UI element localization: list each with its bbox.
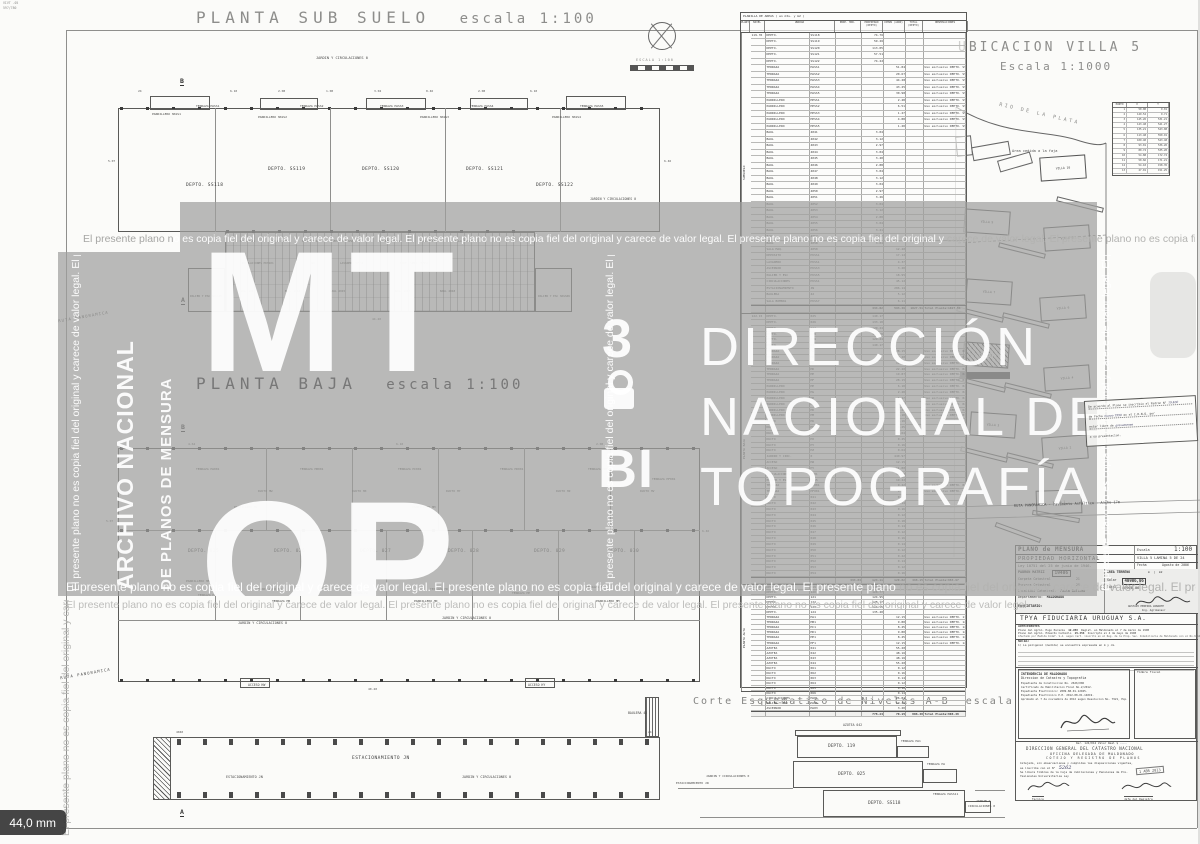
table-cell: [906, 661, 924, 665]
table-cell: [836, 52, 862, 57]
table-cell: [906, 104, 924, 109]
table-cell: [751, 712, 766, 716]
coord-cell: 543.08: [1148, 128, 1169, 132]
table-cell: [924, 666, 966, 670]
coord-cell: 536.26: [1148, 144, 1169, 148]
coord-cell: 93.01: [1127, 144, 1148, 148]
propietario-name: TPYA FIDUCIARIA URUGUAY S.A.: [1020, 615, 1147, 622]
table-cell: 43.25: [884, 85, 906, 90]
coord-cell: 6: [1113, 134, 1127, 138]
parking-label: ESTACIONAMIENTO JN: [226, 776, 263, 779]
table-cell: BAUL: [766, 169, 810, 174]
coord-cell: 171.21: [1148, 159, 1169, 163]
terrace-label: PARRILLERO HASS2: [258, 116, 287, 119]
table-cell: 2.88: [862, 163, 884, 168]
corte-deptoSS118-label: DEPTO. SS118: [868, 802, 901, 807]
table-cell: [906, 182, 924, 187]
table-cell: [906, 98, 924, 103]
coord-cell: 543.48: [1148, 139, 1169, 143]
table-cell: [906, 656, 924, 660]
table-cell: [751, 150, 766, 155]
table-cell: [924, 656, 966, 660]
table-cell: Uso exclusivo DEPTO. SS119: [924, 72, 966, 77]
mtop-logo-op: OP: [200, 476, 461, 596]
table-cell: [906, 78, 924, 83]
table-cell: BAUL: [766, 156, 810, 161]
jefe-registro-label: Jefe del Registro: [1124, 796, 1153, 801]
table-cell: [836, 189, 862, 194]
table-cell: [751, 124, 766, 129]
table-cell: [836, 59, 862, 64]
intendencia-signature: [1057, 710, 1117, 734]
table-cell: 0.12: [884, 681, 906, 685]
table-cell: [924, 671, 966, 675]
table-cell: [766, 712, 810, 716]
corte-depto119-label: DEPTO. 119: [828, 745, 855, 750]
table-cell: [906, 666, 924, 670]
area-header-cell: PROP. HOR.: [835, 21, 861, 32]
corte-terr3-label: TERRAZA HASS11: [933, 793, 958, 796]
table-cell: Uso exclusivo DEPTO. 122: [924, 630, 966, 634]
table-cell: 1.27: [884, 111, 906, 116]
table-cell: [751, 635, 766, 639]
table-cell: PARRILLERO: [766, 104, 810, 109]
table-cell: 74.22: [862, 59, 884, 64]
table-cell: [836, 635, 862, 639]
table-cell: TERRAZA: [766, 65, 810, 70]
watermark-disclaimer-vertical-left-lower: El presente plano no es copia fiel del o…: [60, 600, 72, 836]
terrace-label: PARRILLERO HASS4: [552, 116, 581, 119]
table-cell: [836, 696, 862, 700]
coord-cell: 54.10: [1127, 164, 1148, 168]
table-cell: [924, 686, 966, 690]
table-cell: [884, 33, 906, 38]
table-cell: BAUL: [766, 163, 810, 168]
table-cell: PARRILLERO: [766, 117, 810, 122]
coord-header: X: [1127, 103, 1148, 107]
table-cell: DEPTO.: [766, 52, 810, 57]
table-cell: [836, 176, 862, 181]
table-cell: [751, 661, 766, 665]
table-cell: [906, 625, 924, 629]
table-cell: [906, 686, 924, 690]
table-cell: [924, 189, 966, 194]
table-cell: [906, 163, 924, 168]
table-cell: 3.12: [862, 137, 884, 142]
access-label: ACCESO HY: [528, 684, 545, 687]
table-cell: [862, 630, 884, 634]
dimension-label: 3.04: [374, 90, 381, 93]
table-cell: HA03: [810, 706, 836, 710]
intendencia-box: INTENDENCIA DE MALDONADODireccion de Cat…: [1018, 669, 1130, 739]
table-cell: [862, 646, 884, 650]
table-cell: 778.24: [862, 712, 884, 716]
table-cell: [751, 59, 766, 64]
table-cell: 3.12: [862, 176, 884, 181]
coord-cell: 149.52: [1127, 113, 1148, 117]
table-cell: [862, 681, 884, 685]
table-cell: [884, 176, 906, 181]
table-cell: BAUL: [766, 182, 810, 187]
table-cell: [836, 156, 862, 161]
table-cell: [884, 46, 906, 51]
table-cell: [924, 150, 966, 155]
area-table-title: PLANILLA DE AREAS ( en mts. y m2 ): [741, 13, 966, 21]
table-cell: [906, 176, 924, 181]
section-marker-a: A: [180, 809, 184, 817]
table-cell: 806.48: [906, 712, 924, 716]
table-cell: Total Planta=806.48: [924, 712, 966, 716]
table-cell: 30.98: [884, 91, 906, 96]
table-cell: Uso exclusivo DEPTO. 121: [924, 625, 966, 629]
coord-cell: 1: [1113, 108, 1127, 112]
title-planta-sub-suelo: PLANTA SUB SUELO escala 1:100: [196, 8, 597, 27]
table-cell: HF1: [810, 641, 836, 645]
access-label: ACCESO HW: [248, 684, 265, 687]
table-cell: [884, 143, 906, 148]
table-cell: [751, 169, 766, 174]
table-cell: [751, 701, 766, 705]
table-cell: 4050: [810, 189, 836, 194]
parking-label: ESTACIONAMIENTO JN: [352, 757, 410, 762]
table-cell: [906, 46, 924, 51]
corte-depto025-label: DEPTO. 025: [838, 773, 865, 778]
table-cell: [836, 625, 862, 629]
terrace-label: TERRAZA HASS4: [470, 105, 493, 108]
villa-label: VILLA 10: [1056, 166, 1071, 171]
table-cell: [836, 676, 862, 680]
table-cell: [884, 169, 906, 174]
coord-cell: 172.74: [1148, 154, 1169, 158]
table-cell: [751, 111, 766, 116]
jardin-label: JARDIN Y CIRCULACIONES 0: [462, 776, 511, 779]
table-cell: 042: [810, 651, 836, 655]
table-cell: 48.16: [884, 656, 906, 660]
table-cell: SS119: [810, 39, 836, 44]
table-cell: PARRILLERO: [766, 98, 810, 103]
table-cell: [906, 651, 924, 655]
table-cell: [906, 91, 924, 96]
area-header-cell: COMUN (JARD): [883, 21, 905, 32]
table-cell: [751, 117, 766, 122]
table-cell: [924, 156, 966, 161]
table-cell: [751, 646, 766, 650]
corte-azotea-label: AZOTEA 042: [843, 724, 862, 727]
table-cell: [751, 98, 766, 103]
coord-cell: 9.01: [1148, 108, 1169, 112]
table-cell: 0.16: [884, 671, 906, 675]
table-cell: [751, 189, 766, 194]
table-cell: DUCTO: [766, 666, 810, 670]
table-cell: HPSS3: [810, 111, 836, 116]
table-cell: [751, 706, 766, 710]
table-cell: [906, 150, 924, 155]
table-cell: [836, 33, 862, 38]
table-cell: 3.04: [862, 169, 884, 174]
title-ubicacion-escala: Escala 1:1000: [1000, 60, 1112, 73]
table-cell: HA1: [810, 615, 836, 619]
coord-cell: 550.91: [1148, 134, 1169, 138]
jardin-label: JARDIN Y CIRCULACIONES 0: [442, 617, 491, 620]
mtop-logo-3: 3: [602, 308, 632, 370]
table-cell: 062: [810, 671, 836, 675]
table-cell: [751, 156, 766, 161]
table-cell: [836, 91, 862, 96]
dimension-label: 24: [138, 90, 142, 93]
table-cell: [862, 111, 884, 116]
table-cell: TERRAZA: [766, 78, 810, 83]
registro-body1: Cotejado, sin observaciones y cumplidas …: [1020, 762, 1133, 765]
tecnico-signature: [1026, 779, 1070, 794]
table-cell: SS121: [810, 52, 836, 57]
table-cell: [836, 651, 862, 655]
table-cell: 2.48: [884, 98, 906, 103]
table-cell: 74.76: [862, 33, 884, 38]
coord-cell: 151.25: [1148, 169, 1169, 173]
section-marker-b: B: [180, 78, 184, 86]
table-cell: HPSS5: [810, 124, 836, 129]
coord-cell: 145.26: [1127, 118, 1148, 122]
table-cell: HA05: [810, 701, 836, 705]
coord-cell: 143.48: [1127, 123, 1148, 127]
table-cell: [836, 98, 862, 103]
table-cell: BAUL: [766, 189, 810, 194]
timbre-box: Timbre fiscal: [1134, 669, 1196, 739]
corte-terrace: [923, 769, 957, 783]
table-cell: Uso exclusivo DEPTO. SS122: [924, 91, 966, 96]
table-cell: 59.26: [862, 39, 884, 44]
jefe-signature: [1120, 779, 1172, 794]
coord-cell: 27.01: [1127, 169, 1148, 173]
table-cell: HASS1: [810, 65, 836, 70]
coord-cell: 113.48: [1127, 134, 1148, 138]
coord-cell: 12: [1113, 164, 1127, 168]
fecha-label: Fecha: [1137, 564, 1147, 568]
table-cell: [751, 656, 766, 660]
table-cell: [836, 641, 862, 645]
table-cell: [862, 656, 884, 660]
table-cell: 4041: [810, 130, 836, 135]
jardin-label: JARDIN Y CIRCULACIONES 0: [316, 57, 368, 61]
table-cell: TERRAZA: [766, 615, 810, 619]
table-cell: [906, 169, 924, 174]
table-cell: [751, 681, 766, 685]
coord-cell: 109.40: [1127, 139, 1148, 143]
table-cell: 19.42: [884, 701, 906, 705]
table-cell: 064: [810, 681, 836, 685]
table-cell: 2.97: [862, 143, 884, 148]
catastro-line3: COTEJO Y REGISTRO DE PLANOS: [1046, 757, 1141, 761]
coord-cell: 80.74: [1127, 149, 1148, 153]
table-cell: [836, 150, 862, 155]
table-cell: [836, 85, 862, 90]
table-cell: [906, 646, 924, 650]
unit-label: DEPTO. SS120: [362, 168, 399, 173]
table-cell: Uso exclusivo DEPTO. SS121: [924, 85, 966, 90]
table-cell: HPSS2: [810, 104, 836, 109]
table-cell: [751, 143, 766, 148]
derechos-line: Der. 124/012 Valor Real $ ........: [1076, 742, 1127, 745]
table-cell: 0.12: [884, 666, 906, 670]
table-cell: BAUL: [766, 130, 810, 135]
coord-cell: 535.20: [1148, 149, 1169, 153]
corte-ground-right: [975, 790, 1005, 791]
terrace-label: TERRAZA HASS3: [380, 105, 403, 108]
table-cell: DEPTO.: [766, 46, 810, 51]
table-cell: [836, 163, 862, 168]
plan-baja-columns: [120, 679, 698, 682]
table-cell: [924, 130, 966, 135]
parking-outline: [153, 737, 660, 800]
table-cell: 0.14: [884, 691, 906, 695]
table-cell: DUCTO: [766, 691, 810, 695]
area-table-header: PLANTANIVELUNIDADPROP. HOR.PROPIEDAD (DE…: [741, 21, 966, 33]
table-cell: [884, 150, 906, 155]
table-cell: [836, 686, 862, 690]
table-cell: [751, 130, 766, 135]
scanned-plan-sheet: VIVT .05 597/780 PLANTA SUB SUELO escala…: [0, 0, 1200, 844]
table-cell: 2.97: [862, 189, 884, 194]
table-cell: [836, 65, 862, 70]
table-cell: [836, 661, 862, 665]
table-cell: [836, 111, 862, 116]
dimension-label: 5.07: [108, 160, 115, 163]
padlock-icon: [604, 370, 634, 409]
table-cell: 3.04: [862, 182, 884, 187]
table-cell: HASS5: [810, 91, 836, 96]
table-cell: [906, 630, 924, 634]
corte-left-label: ESTACIONAMIENTO JN: [676, 782, 709, 785]
table-cell: [884, 182, 906, 187]
table-cell: [862, 620, 884, 624]
table-cell: [751, 676, 766, 680]
table-cell: 061: [810, 666, 836, 670]
table-cell: [836, 78, 862, 83]
table-cell: [906, 143, 924, 148]
table-cell: Uso exclusivo DEPTO. 120: [924, 620, 966, 624]
unit-label: DEPTO. SS119: [268, 168, 305, 173]
table-cell: [810, 712, 836, 716]
table-cell: [836, 691, 862, 695]
table-cell: [836, 117, 862, 122]
table-cell: [751, 65, 766, 70]
bar-scale: [630, 65, 694, 71]
table-cell: [862, 117, 884, 122]
table-cell: [906, 137, 924, 142]
dimension-label: 6.10: [230, 90, 237, 93]
stamp-line: De acuerdo al Plano se inscribio el Padr…: [1088, 400, 1192, 410]
table-cell: AZOTEA: [766, 661, 810, 665]
bar-scale-label: ESCALA 1:100: [636, 59, 674, 63]
corte-right-jardin2: CIRCULACIONES 0: [968, 805, 995, 808]
table-cell: [924, 52, 966, 57]
table-cell: [862, 65, 884, 70]
table-cell: [862, 691, 884, 695]
fecha-value: Agosto de 2006: [1162, 564, 1189, 568]
table-cell: [836, 666, 862, 670]
table-cell: 9.80: [884, 620, 906, 624]
unit-label: DEPTO. SS122: [536, 184, 573, 189]
corte-terr2-label: TERRAZA HA: [927, 763, 945, 766]
table-cell: SS122: [810, 59, 836, 64]
mtop-logo-b: B: [598, 438, 637, 500]
corte-depto025: DEPTO. 025: [793, 761, 923, 788]
table-cell: [751, 620, 766, 624]
table-cell: [924, 39, 966, 44]
table-cell: [751, 686, 766, 690]
table-cell: [751, 85, 766, 90]
table-cell: [751, 46, 766, 51]
table-cell: SS118: [810, 33, 836, 38]
table-cell: [906, 691, 924, 695]
table-cell: 55.20: [884, 661, 906, 665]
table-cell: [906, 59, 924, 64]
table-cell: [751, 696, 766, 700]
table-cell: 55.20: [884, 646, 906, 650]
date-stamp: 1 ABR 2013: [1136, 766, 1164, 776]
coord-cell: 9.71: [1148, 113, 1169, 117]
table-cell: AZOTEA: [766, 646, 810, 650]
intendencia-line: Aprobado el 7 de noviembre de 2012 segun…: [1021, 697, 1127, 701]
table-cell: [906, 33, 924, 38]
band-line: [118, 620, 700, 621]
table-cell: DUCTO: [766, 671, 810, 675]
mtop-logo-mt: MT: [200, 226, 460, 398]
area-header-cell: OBSERVACIONES: [923, 21, 968, 32]
dimension-label: 24: [648, 731, 652, 734]
coord-cell: 9: [1113, 149, 1127, 153]
table-cell: [862, 641, 884, 645]
timbre-label: Timbre fiscal: [1137, 671, 1160, 674]
table-cell: 3.20: [884, 706, 906, 710]
table-cell: [862, 78, 884, 83]
corte-ground: [678, 788, 793, 789]
table-cell: [924, 176, 966, 181]
coord-table: PUNTOXY 150.009.012149.529.713145.26531.…: [1112, 102, 1170, 176]
table-cell: [751, 625, 766, 629]
table-cell: [906, 130, 924, 135]
area-header-cell: UNIDAD: [765, 21, 835, 32]
table-cell: [924, 169, 966, 174]
table-cell: AZOTEA: [766, 656, 810, 660]
table-cell: [924, 46, 966, 51]
table-cell: [924, 676, 966, 680]
table-cell: HD1: [810, 630, 836, 634]
dimension-label: 40.40: [368, 688, 377, 691]
table-cell: 0.14: [884, 676, 906, 680]
table-cell: HE1: [810, 635, 836, 639]
table-cell: [906, 620, 924, 624]
table-cell: 4047: [810, 169, 836, 174]
table-cell: [751, 666, 766, 670]
table-cell: [924, 163, 966, 168]
area-header-cell: PLANTA: [741, 21, 750, 32]
table-cell: [906, 124, 924, 129]
table-cell: [884, 39, 906, 44]
nota-1: 1) La poligonal (medida) se encuentra ex…: [1018, 644, 1116, 647]
table-cell: CIRCULACIONES: [766, 696, 810, 700]
table-cell: TERRAZA: [766, 625, 810, 629]
table-cell: [884, 59, 906, 64]
table-cell: [924, 706, 966, 710]
table-cell: [924, 696, 966, 700]
table-cell: [836, 646, 862, 650]
watermark-disclaimer-line3: El presente plano no es copia fiel del o…: [66, 599, 1026, 611]
table-cell: [906, 701, 924, 705]
table-cell: 44.28: [884, 78, 906, 83]
table-cell: [836, 681, 862, 685]
escala-value: 1:100: [1174, 547, 1192, 554]
